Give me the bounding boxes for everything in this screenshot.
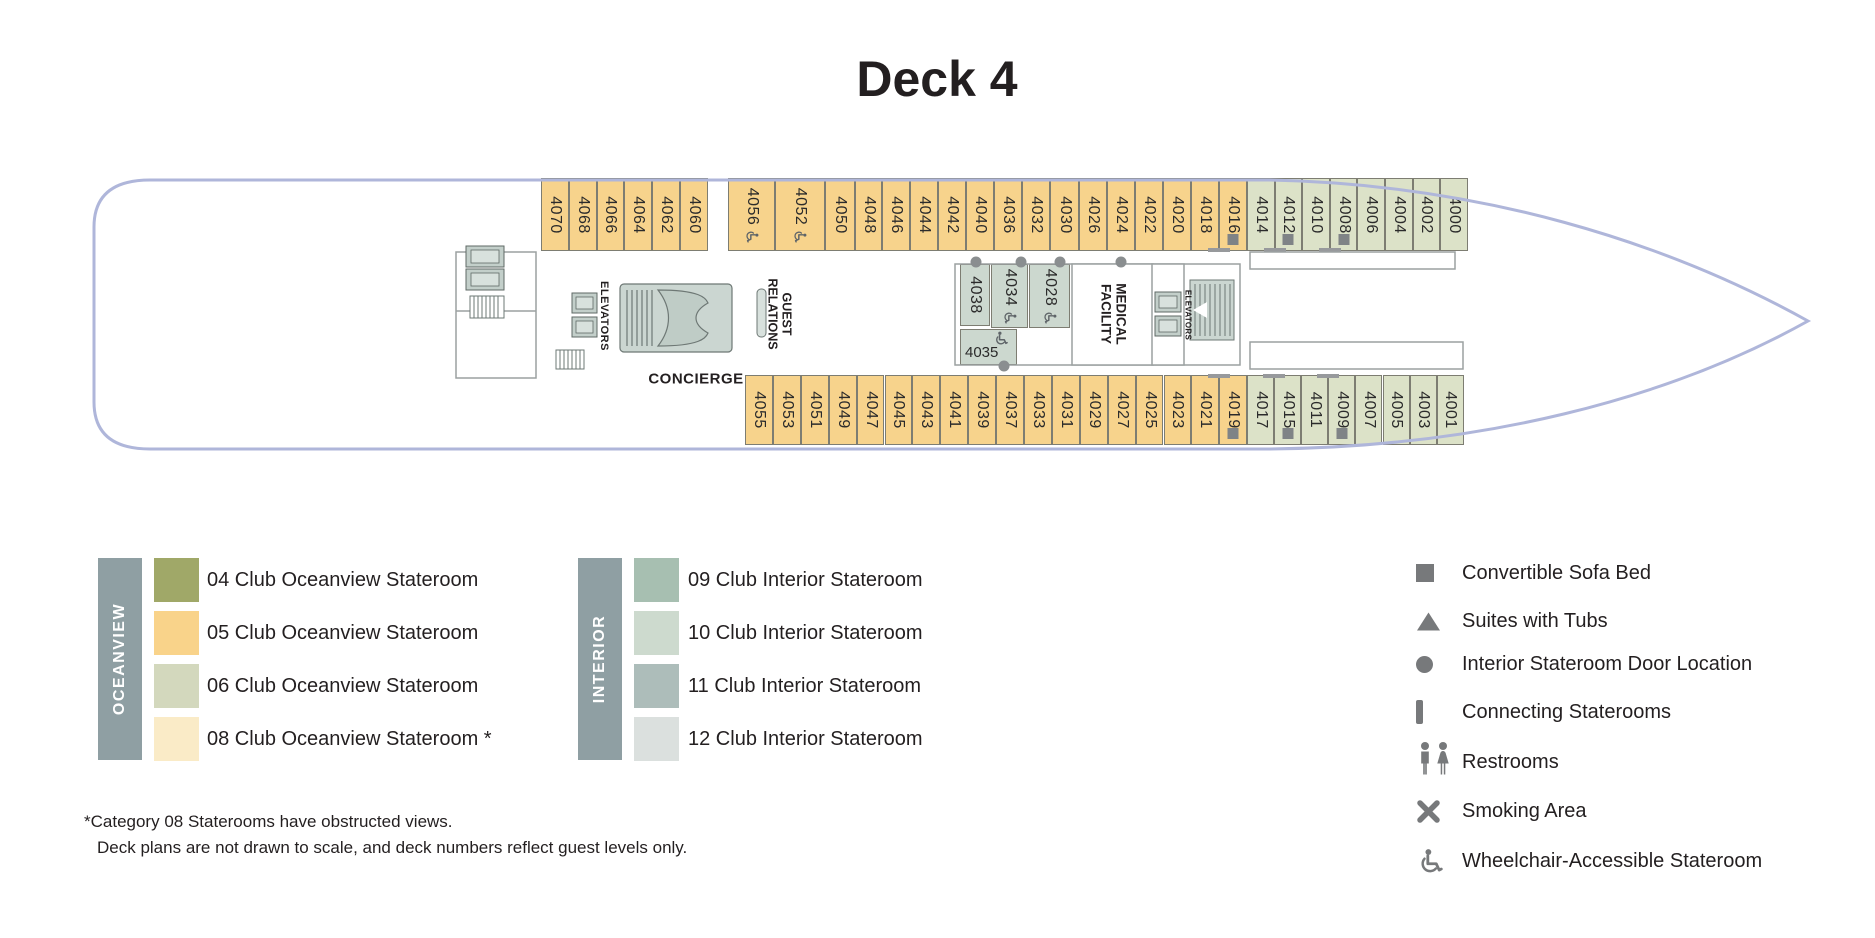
legend-item-interior-09: 09 Club Interior Stateroom bbox=[688, 558, 923, 602]
wheelchair-icon bbox=[1003, 309, 1017, 323]
sofa-bed-marker bbox=[1227, 234, 1238, 245]
stateroom-4062: 4062 bbox=[652, 178, 680, 251]
elevators-left-label: ELEVATORS bbox=[597, 281, 609, 351]
smoking-icon bbox=[1416, 799, 1441, 824]
legend-swatch-06 bbox=[154, 664, 199, 708]
stateroom-number: 4038 bbox=[966, 276, 984, 314]
stateroom-number: 4053 bbox=[778, 391, 796, 429]
connecting-marker bbox=[1208, 248, 1230, 252]
legend-item-label: 06 Club Oceanview Stateroom bbox=[207, 675, 478, 698]
sofa-bed-icon bbox=[1416, 564, 1434, 582]
stateroom-4025: 4025 bbox=[1136, 375, 1164, 445]
sofa-bed-marker bbox=[1228, 428, 1239, 439]
stateroom-number: 4016 bbox=[1224, 196, 1242, 234]
legend-item-interior-11: 11 Club Interior Stateroom bbox=[688, 664, 921, 708]
stateroom-4060: 4060 bbox=[680, 178, 708, 251]
stateroom-4040: 4040 bbox=[966, 178, 994, 251]
stateroom-4052: 4052 bbox=[775, 178, 825, 251]
stateroom-4053: 4053 bbox=[773, 375, 801, 445]
connecting-marker bbox=[1319, 248, 1341, 252]
connecting-marker bbox=[1208, 374, 1230, 378]
stateroom-number: 4042 bbox=[943, 196, 961, 234]
elevator-cars-right bbox=[1152, 264, 1184, 365]
stateroom-number: 4012 bbox=[1279, 196, 1297, 234]
stateroom-number: 4041 bbox=[945, 391, 963, 429]
connecting-icon bbox=[1416, 700, 1423, 724]
stairs-right bbox=[1190, 280, 1234, 340]
stateroom-4047: 4047 bbox=[857, 375, 885, 445]
legend-symbol-triangle: Suites with Tubs bbox=[1416, 599, 1608, 643]
legend-item-interior-12: 12 Club Interior Stateroom bbox=[688, 717, 923, 761]
stateroom-number: 4028 bbox=[1041, 269, 1059, 324]
ship-structure bbox=[0, 0, 1875, 938]
stateroom-4030: 4030 bbox=[1050, 178, 1078, 251]
stateroom-number: 4051 bbox=[806, 391, 824, 429]
legend-symbol-restrooms: Restrooms bbox=[1416, 740, 1559, 784]
stateroom-4027: 4027 bbox=[1108, 375, 1136, 445]
stateroom-number: 4066 bbox=[601, 196, 619, 234]
stateroom-4022: 4022 bbox=[1135, 178, 1163, 251]
grand-staircase bbox=[620, 284, 732, 352]
stateroom-number: 4030 bbox=[1056, 196, 1074, 234]
stateroom-4002: 4002 bbox=[1413, 178, 1441, 251]
stairs-left-lower bbox=[556, 350, 584, 369]
stateroom-4029: 4029 bbox=[1080, 375, 1108, 445]
legend-item-oceanview-08: 08 Club Oceanview Stateroom * bbox=[207, 717, 492, 761]
stateroom-number: 4004 bbox=[1390, 196, 1408, 234]
stateroom-number: 4024 bbox=[1112, 196, 1130, 234]
stateroom-number: 4003 bbox=[1414, 391, 1432, 429]
stateroom-number: 4001 bbox=[1441, 391, 1459, 429]
legend-interior-title: INTERIOR bbox=[591, 615, 609, 703]
stateroom-4039: 4039 bbox=[968, 375, 996, 445]
legend-symbol-wheelchair: Wheelchair-Accessible Stateroom bbox=[1416, 839, 1762, 883]
stateroom-4024: 4024 bbox=[1107, 178, 1135, 251]
elevators-right-label: ELEVATORS bbox=[1183, 290, 1192, 340]
stateroom-number: 4044 bbox=[915, 196, 933, 234]
sofa-bed-marker bbox=[1336, 428, 1347, 439]
legend-symbol-label: Restrooms bbox=[1462, 751, 1559, 774]
stateroom-4044: 4044 bbox=[910, 178, 938, 251]
legend-swatch-12 bbox=[634, 717, 679, 761]
guest-relations-label: GUEST RELATIONS bbox=[766, 275, 793, 353]
stateroom-4038: 4038 bbox=[960, 264, 990, 326]
stateroom-4049: 4049 bbox=[829, 375, 857, 445]
stateroom-4019: 4019 bbox=[1219, 375, 1247, 445]
legend-swatch-04 bbox=[154, 558, 199, 602]
footnote-not-to-scale: Deck plans are not drawn to scale, and d… bbox=[97, 838, 687, 858]
stateroom-number: 4039 bbox=[973, 391, 991, 429]
stateroom-number: 4034 bbox=[1001, 269, 1019, 324]
sofa-bed-marker bbox=[1338, 234, 1349, 245]
stateroom-number: 4070 bbox=[546, 196, 564, 234]
legend-swatch-11 bbox=[634, 664, 679, 708]
stateroom-number: 4023 bbox=[1168, 391, 1186, 429]
stateroom-4034: 4034 bbox=[991, 264, 1028, 328]
stateroom-number: 4006 bbox=[1362, 196, 1380, 234]
stateroom-number: 4056 bbox=[743, 187, 761, 242]
stateroom-4045: 4045 bbox=[885, 375, 913, 445]
stateroom-4046: 4046 bbox=[882, 178, 910, 251]
stateroom-number: 4029 bbox=[1085, 391, 1103, 429]
legend-item-label: 11 Club Interior Stateroom bbox=[688, 675, 921, 698]
stateroom-4004: 4004 bbox=[1385, 178, 1413, 251]
legend-symbol-label: Wheelchair-Accessible Stateroom bbox=[1462, 850, 1762, 873]
legend-item-oceanview-06: 06 Club Oceanview Stateroom bbox=[207, 664, 478, 708]
stateroom-number: 4020 bbox=[1168, 196, 1186, 234]
legend-oceanview-bar: OCEANVIEW bbox=[98, 558, 142, 760]
stateroom-4070: 4070 bbox=[541, 178, 569, 251]
stateroom-number: 4068 bbox=[574, 196, 592, 234]
stateroom-4003: 4003 bbox=[1410, 375, 1437, 445]
legend-symbol-label: Smoking Area bbox=[1462, 800, 1587, 823]
sofa-bed-marker bbox=[1282, 428, 1293, 439]
stateroom-number: 4027 bbox=[1113, 391, 1131, 429]
stateroom-number: 4026 bbox=[1084, 196, 1102, 234]
legend-oceanview-title: OCEANVIEW bbox=[111, 603, 129, 715]
stateroom-number: 4002 bbox=[1417, 196, 1435, 234]
legend-symbol-label: Convertible Sofa Bed bbox=[1462, 562, 1651, 585]
stateroom-number: 4060 bbox=[685, 196, 703, 234]
stateroom-number: 4005 bbox=[1387, 391, 1405, 429]
stateroom-number: 4021 bbox=[1196, 391, 1214, 429]
stateroom-4000: 4000 bbox=[1440, 178, 1468, 251]
stateroom-4064: 4064 bbox=[624, 178, 652, 251]
legend-item-label: 12 Club Interior Stateroom bbox=[688, 728, 923, 751]
stateroom-number: 4037 bbox=[1001, 391, 1019, 429]
medical-facility-label: MEDICAL FACILITY bbox=[1098, 278, 1127, 350]
stateroom-4023: 4023 bbox=[1164, 375, 1192, 445]
stateroom-number: 4009 bbox=[1333, 391, 1351, 429]
connecting-marker bbox=[1317, 374, 1339, 378]
stateroom-4031: 4031 bbox=[1052, 375, 1080, 445]
legend-symbol-label: Connecting Staterooms bbox=[1462, 701, 1671, 724]
legend-item-label: 05 Club Oceanview Stateroom bbox=[207, 622, 478, 645]
concierge-label: CONCIERGE bbox=[648, 371, 743, 388]
stateroom-4037: 4037 bbox=[996, 375, 1024, 445]
legend-swatch-05 bbox=[154, 611, 199, 655]
stateroom-4028: 4028 bbox=[1029, 264, 1070, 328]
legend-symbol-square: Convertible Sofa Bed bbox=[1416, 551, 1651, 595]
stateroom-4026: 4026 bbox=[1079, 178, 1107, 251]
stateroom-4006: 4006 bbox=[1357, 178, 1385, 251]
legend-swatch-10 bbox=[634, 611, 679, 655]
stateroom-number: 4033 bbox=[1029, 391, 1047, 429]
stateroom-4008: 4008 bbox=[1330, 178, 1358, 251]
stateroom-4016: 4016 bbox=[1219, 178, 1247, 251]
wheelchair-legend-icon bbox=[1416, 848, 1443, 875]
stateroom-number: 4047 bbox=[862, 391, 880, 429]
legend-symbol-label: Suites with Tubs bbox=[1462, 610, 1608, 633]
stateroom-number: 4008 bbox=[1335, 196, 1353, 234]
stateroom-number: 4040 bbox=[971, 196, 989, 234]
stateroom-4051: 4051 bbox=[801, 375, 829, 445]
legend-item-label: 08 Club Oceanview Stateroom * bbox=[207, 728, 492, 751]
legend-item-oceanview-04: 04 Club Oceanview Stateroom bbox=[207, 558, 478, 602]
stateroom-number: 4015 bbox=[1279, 391, 1297, 429]
elevator-cars-left-outer bbox=[466, 246, 504, 290]
stateroom-number: 4018 bbox=[1196, 196, 1214, 234]
stateroom-4035: 4035 bbox=[960, 329, 1017, 365]
stateroom-4007: 4007 bbox=[1355, 375, 1382, 445]
stateroom-4041: 4041 bbox=[940, 375, 968, 445]
stateroom-number: 4017 bbox=[1252, 391, 1270, 429]
stateroom-4001: 4001 bbox=[1437, 375, 1464, 445]
stateroom-4020: 4020 bbox=[1163, 178, 1191, 251]
stateroom-4005: 4005 bbox=[1383, 375, 1410, 445]
stateroom-4056: 4056 bbox=[728, 178, 775, 251]
stateroom-number: 4062 bbox=[657, 196, 675, 234]
stateroom-4015: 4015 bbox=[1274, 375, 1301, 445]
door-location-icon bbox=[1416, 656, 1433, 673]
legend-item-label: 04 Club Oceanview Stateroom bbox=[207, 569, 478, 592]
stateroom-4032: 4032 bbox=[1022, 178, 1050, 251]
stateroom-number: 4046 bbox=[887, 196, 905, 234]
legend-swatch-08 bbox=[154, 717, 199, 761]
door-location-dot bbox=[1116, 257, 1127, 268]
wheelchair-icon bbox=[1043, 309, 1057, 323]
suites-tub-icon bbox=[1416, 611, 1441, 632]
stateroom-4009: 4009 bbox=[1328, 375, 1355, 445]
stateroom-number: 4050 bbox=[831, 196, 849, 234]
stairs-left-outer bbox=[470, 296, 504, 318]
wheelchair-icon bbox=[993, 331, 1008, 346]
legend-item-label: 09 Club Interior Stateroom bbox=[688, 569, 923, 592]
stateroom-4066: 4066 bbox=[597, 178, 625, 251]
stateroom-4010: 4010 bbox=[1302, 178, 1330, 251]
stateroom-number: 4031 bbox=[1057, 391, 1075, 429]
legend-item-label: 10 Club Interior Stateroom bbox=[688, 622, 923, 645]
stateroom-number: 4032 bbox=[1027, 196, 1045, 234]
elevator-cars-left bbox=[572, 293, 597, 337]
stateroom-4050: 4050 bbox=[825, 178, 855, 251]
stateroom-4043: 4043 bbox=[912, 375, 940, 445]
stateroom-number: 4019 bbox=[1224, 391, 1242, 429]
stateroom-number: 4052 bbox=[791, 187, 809, 242]
stateroom-4011: 4011 bbox=[1301, 375, 1328, 445]
connecting-marker bbox=[1264, 248, 1286, 252]
stateroom-4021: 4021 bbox=[1191, 375, 1219, 445]
wheelchair-icon bbox=[793, 228, 807, 242]
deck-plan-page: Deck 4 4070406840664064406240604056 4052… bbox=[0, 0, 1875, 938]
stateroom-number: 4048 bbox=[860, 196, 878, 234]
footnote-obstructed-views: *Category 08 Staterooms have obstructed … bbox=[84, 812, 453, 832]
legend-item-oceanview-05: 05 Club Oceanview Stateroom bbox=[207, 611, 478, 655]
stateroom-4033: 4033 bbox=[1024, 375, 1052, 445]
stateroom-number: 4043 bbox=[917, 391, 935, 429]
stateroom-number: 4022 bbox=[1140, 196, 1158, 234]
restrooms-icon bbox=[1416, 741, 1454, 783]
stateroom-number: 4010 bbox=[1307, 196, 1325, 234]
stateroom-number: 4014 bbox=[1252, 196, 1270, 234]
stateroom-number: 4007 bbox=[1360, 391, 1378, 429]
legend-swatch-09 bbox=[634, 558, 679, 602]
stateroom-4018: 4018 bbox=[1191, 178, 1219, 251]
deck-title: Deck 4 bbox=[856, 50, 1017, 108]
legend-symbol-circle: Interior Stateroom Door Location bbox=[1416, 642, 1752, 686]
stateroom-4068: 4068 bbox=[569, 178, 597, 251]
stateroom-number: 4025 bbox=[1141, 391, 1159, 429]
sofa-bed-marker bbox=[1283, 234, 1294, 245]
stateroom-4014: 4014 bbox=[1247, 178, 1275, 251]
stateroom-4017: 4017 bbox=[1247, 375, 1274, 445]
stateroom-number: 4011 bbox=[1306, 392, 1324, 428]
connecting-marker bbox=[1263, 374, 1285, 378]
legend-symbol-smoking: Smoking Area bbox=[1416, 789, 1587, 833]
legend-item-interior-10: 10 Club Interior Stateroom bbox=[688, 611, 923, 655]
stateroom-number: 4055 bbox=[750, 391, 768, 429]
stateroom-number: 4049 bbox=[834, 391, 852, 429]
legend-interior-bar: INTERIOR bbox=[578, 558, 622, 760]
stateroom-number: 4045 bbox=[889, 391, 907, 429]
stateroom-4048: 4048 bbox=[855, 178, 882, 251]
stateroom-number: 4036 bbox=[999, 196, 1017, 234]
legend-symbol-bar: Connecting Staterooms bbox=[1416, 690, 1671, 734]
stateroom-number: 4064 bbox=[629, 196, 647, 234]
stateroom-4055: 4055 bbox=[745, 375, 773, 445]
stateroom-number: 4000 bbox=[1445, 196, 1463, 234]
stateroom-4012: 4012 bbox=[1275, 178, 1303, 251]
legend-symbol-label: Interior Stateroom Door Location bbox=[1462, 653, 1752, 676]
stateroom-4042: 4042 bbox=[938, 178, 966, 251]
stateroom-4036: 4036 bbox=[994, 178, 1022, 251]
wheelchair-icon bbox=[745, 228, 759, 242]
